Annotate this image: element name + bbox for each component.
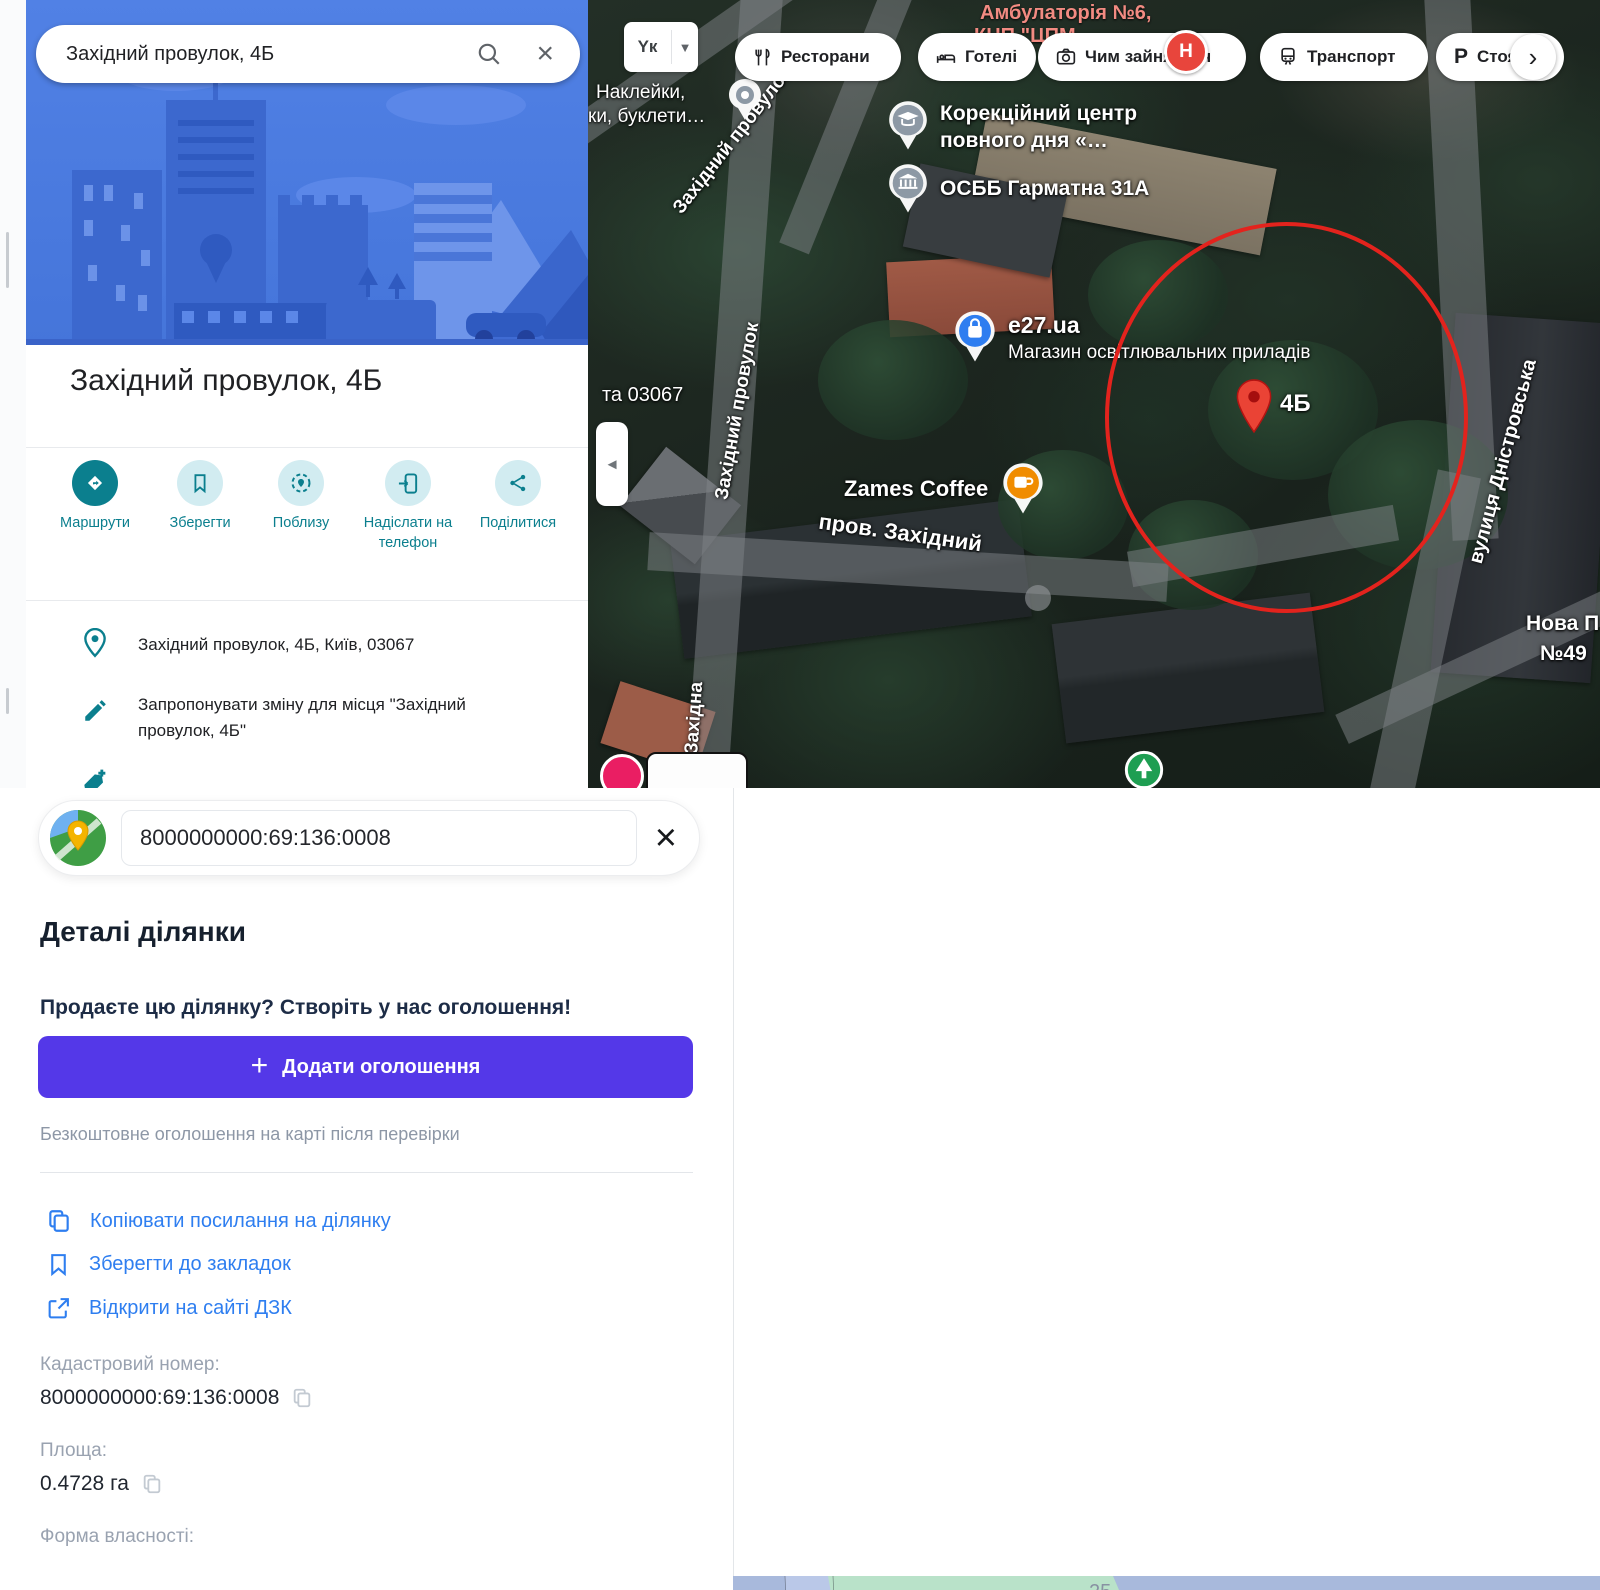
map-logo-icon <box>49 809 107 867</box>
chevron-down-icon[interactable]: ▼ <box>672 40 698 55</box>
open-dzk-label: Відкрити на сайті ДЗК <box>89 1297 292 1320</box>
send-to-phone-icon <box>397 472 420 495</box>
map-style-control[interactable]: Yк ▼ <box>624 22 698 72</box>
cadastral-map[interactable]: 4-А Машинобудівна вулиця Гарматна вулиця… <box>733 1576 1600 1590</box>
place-hero-illustration: × <box>26 0 588 345</box>
collapse-panel-button[interactable]: ◄ <box>596 422 628 506</box>
destination-pin[interactable] <box>1233 378 1275 434</box>
action-label: Маршрути <box>40 514 150 534</box>
park-pin-icon <box>1124 750 1164 788</box>
restaurant-icon <box>753 48 772 67</box>
shopping-pin-icon <box>954 310 996 364</box>
scrollbar-mark <box>6 688 9 714</box>
ownership-label: Форма власності: <box>40 1526 194 1548</box>
save-button[interactable]: Зберегти <box>150 460 250 553</box>
chip-transit[interactable]: Транспорт <box>1260 33 1428 81</box>
address-row[interactable]: Західний провулок, 4Б, Київ, 03067 <box>138 632 414 658</box>
place-label-stickers-2: ки, буклети… <box>588 106 705 128</box>
directions-icon <box>83 471 107 495</box>
poi-zames[interactable]: Zames Coffee <box>844 462 1044 516</box>
divider <box>26 447 588 448</box>
poi-korek-line1: Корекційний центр <box>940 100 1137 127</box>
destination-pin-label: 4Б <box>1280 390 1311 418</box>
directions-button[interactable]: Маршрути <box>40 460 150 553</box>
copy-link-icon <box>46 1208 72 1234</box>
cadastre-number-field[interactable] <box>121 810 637 866</box>
area-value: 0.4728 га <box>40 1472 129 1496</box>
close-icon[interactable]: × <box>655 819 677 857</box>
map-style-label: Yк <box>624 30 672 64</box>
copy-icon[interactable] <box>141 1472 163 1496</box>
copy-link-action[interactable]: Копіювати посилання на ділянку <box>46 1208 391 1234</box>
chip-label: Транспорт <box>1307 47 1395 67</box>
free-listing-note: Безкоштовне оголошення на карті після пе… <box>40 1124 460 1145</box>
scrollbar-mark <box>6 232 9 288</box>
school-pin-icon <box>888 100 928 152</box>
area-value-row: 0.4728 га <box>40 1472 163 1496</box>
hospital-pin[interactable]: H <box>1164 30 1208 74</box>
panel-title: Деталі ділянки <box>40 916 246 948</box>
plus-icon: + <box>251 1049 269 1083</box>
share-icon <box>507 472 529 494</box>
chip-things-to-do[interactable]: Чим зайнятися <box>1038 33 1246 81</box>
location-pin-icon <box>82 628 108 658</box>
nearby-button[interactable]: Поблизу <box>250 460 352 553</box>
action-label: Надіслати на телефон <box>352 514 464 553</box>
address-row-icon <box>82 628 108 658</box>
hotel-icon <box>936 47 956 67</box>
trees <box>818 320 968 440</box>
suggest-row-icon <box>82 698 108 728</box>
chevron-left-icon: ◄ <box>605 456 620 473</box>
building <box>1052 593 1325 744</box>
satellite-map[interactable]: пров. Західний Західний провулок Західни… <box>588 0 1600 788</box>
action-label: Поблизу <box>250 514 352 534</box>
place-actions: Маршрути Зберегти Поблизу Надіслати на т… <box>40 460 576 553</box>
suggest-line1: Запропонувати зміну для місця "Західний <box>138 692 466 718</box>
clear-search-icon[interactable]: × <box>536 39 554 69</box>
copy-icon[interactable] <box>291 1386 313 1410</box>
google-maps-section: пров. Західний Західний провулок Західни… <box>0 0 1600 788</box>
chip-restaurants[interactable]: Ресторани <box>735 33 901 81</box>
chips-scroll-button[interactable]: › <box>1510 34 1556 80</box>
add-listing-label: Додати оголошення <box>282 1056 480 1079</box>
cadastre-section: × Деталі ділянки Продаєте цю ділянку? Ст… <box>0 788 1600 1590</box>
poi-zames-label: Zames Coffee <box>844 476 988 502</box>
place-panel: × Західний провулок, 4Б Маршрути Зберегт… <box>26 0 588 788</box>
chip-hotels[interactable]: Готелі <box>918 33 1036 81</box>
place-label-poshta: та 03067 <box>602 384 683 407</box>
building-pin-icon <box>888 163 928 215</box>
place-title: Західний провулок, 4Б <box>70 364 382 398</box>
send-to-phone-button[interactable]: Надіслати на телефон <box>352 460 464 553</box>
bookmark-icon <box>189 472 211 494</box>
poi-osbb-label: ОСББ Гарматна 31А <box>940 177 1149 201</box>
place-label-nova-poshta: Нова П <box>1526 612 1599 636</box>
search-icon[interactable] <box>476 41 502 67</box>
copy-link-label: Копіювати посилання на ділянку <box>90 1210 391 1233</box>
save-bookmark-action[interactable]: Зберегти до закладок <box>46 1252 291 1277</box>
cadastre-number-input[interactable] <box>122 825 636 851</box>
save-bookmark-label: Зберегти до закладок <box>89 1253 291 1276</box>
camera-icon <box>1056 47 1076 67</box>
train-icon <box>1278 47 1298 67</box>
cad-number-value-row: 8000000000:69:136:0008 <box>40 1386 313 1410</box>
bookmark-icon <box>46 1252 71 1277</box>
place-label-stickers: Наклейки, <box>596 82 685 104</box>
coffee-pin-icon <box>1002 462 1044 516</box>
page-edge-strip <box>0 0 27 788</box>
promo-text: Продаєте цю ділянку? Створіть у нас огол… <box>40 996 571 1020</box>
divider <box>40 1172 693 1173</box>
chip-label: Готелі <box>965 47 1017 67</box>
area-label: Площа: <box>40 1440 107 1462</box>
search-input[interactable] <box>64 42 476 67</box>
poi-stickers-pin[interactable] <box>728 78 762 122</box>
road-intersection <box>1025 585 1051 611</box>
add-listing-button[interactable]: + Додати оголошення <box>38 1036 693 1098</box>
cadastral-map-svg: 4-А Машинобудівна вулиця Гарматна вулиця… <box>733 1576 1600 1590</box>
poi-tree-pin[interactable] <box>1124 750 1164 788</box>
nova-poshta-marker[interactable] <box>600 754 644 788</box>
divider <box>26 600 588 601</box>
search-bar[interactable]: × <box>36 25 580 83</box>
action-label: Поділитися <box>464 514 572 534</box>
chip-label: Ресторани <box>781 47 870 67</box>
poi-osbb[interactable]: ОСББ Гарматна 31А <box>888 163 1149 215</box>
cadastre-search-bar[interactable]: × <box>38 800 700 876</box>
chevron-right-icon: › <box>1529 42 1538 73</box>
map-inset[interactable] <box>646 752 748 788</box>
city-illustration <box>26 45 588 345</box>
nearby-icon <box>289 471 313 495</box>
parcel-panel: × Деталі ділянки Продаєте цю ділянку? Ст… <box>0 788 734 1590</box>
dot-pin-icon <box>728 78 762 122</box>
place-label-nova-poshta-2: №49 <box>1540 642 1587 666</box>
cad-number-label: Кадастровий номер: <box>40 1354 220 1376</box>
poi-korek[interactable]: Корекційний центр повного дня «… <box>888 100 1137 155</box>
parcel-number: 25 <box>1089 1581 1111 1590</box>
red-pin-icon <box>1233 378 1275 434</box>
suggest-edit-row[interactable]: Запропонувати зміну для місця "Західний … <box>138 692 466 745</box>
parking-icon: P <box>1454 45 1468 69</box>
cad-number-value: 8000000000:69:136:0008 <box>40 1386 279 1410</box>
poi-korek-line2: повного дня «… <box>940 127 1137 154</box>
external-link-icon <box>46 1296 71 1321</box>
screenshot-root: пров. Західний Західний провулок Західни… <box>0 0 1600 1590</box>
open-dzk-action[interactable]: Відкрити на сайті ДЗК <box>46 1296 292 1321</box>
share-button[interactable]: Поділитися <box>464 460 572 553</box>
pencil-icon <box>82 698 108 724</box>
hospital-label-line1: Амбулаторія №6, <box>980 2 1151 25</box>
suggest-line2: провулок, 4Б" <box>138 718 466 744</box>
action-label: Зберегти <box>150 514 250 534</box>
